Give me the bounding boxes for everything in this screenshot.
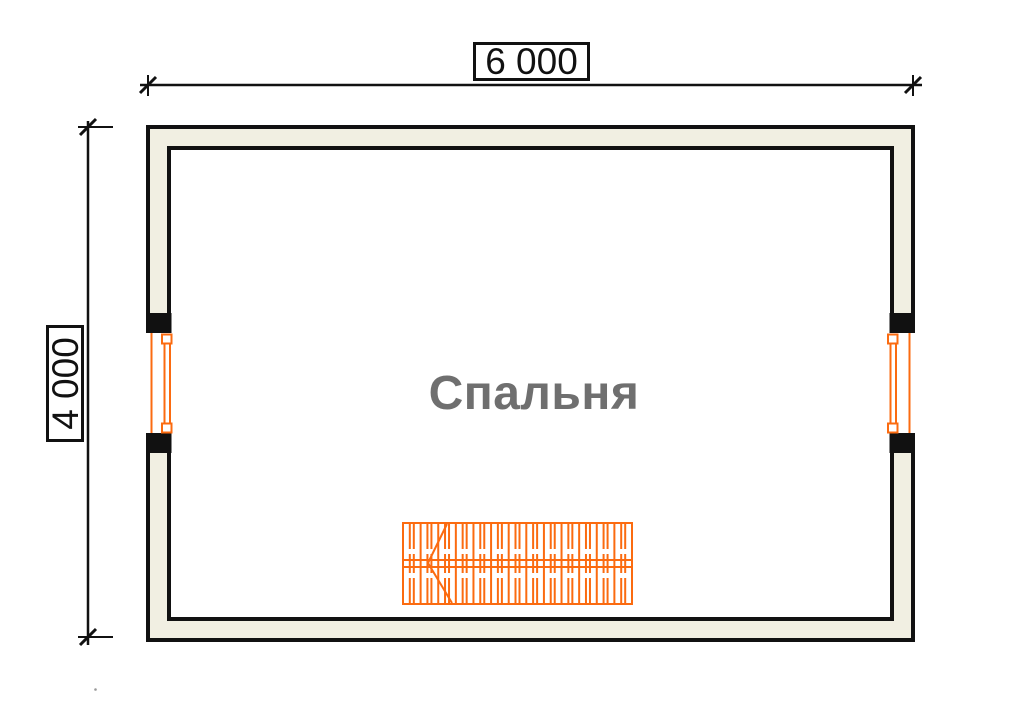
dimension-height-value: 4 000 bbox=[47, 337, 84, 430]
dimension-width-value: 6 000 bbox=[485, 43, 578, 80]
dimension-height-label: 4 000 bbox=[46, 325, 84, 442]
wall-end-cap bbox=[890, 433, 916, 453]
wall-end-cap bbox=[146, 313, 172, 333]
staircase-symbol bbox=[403, 523, 632, 604]
floor-plan-canvas: 6 000 4 000 Спальня bbox=[0, 0, 1018, 720]
artifact-dot bbox=[94, 688, 97, 691]
room-label: Спальня bbox=[384, 370, 684, 418]
wall-end-cap bbox=[146, 433, 172, 453]
floor-plan-drawing bbox=[0, 0, 1018, 720]
dimension-width-label: 6 000 bbox=[473, 42, 590, 81]
wall-end-cap bbox=[890, 313, 916, 333]
